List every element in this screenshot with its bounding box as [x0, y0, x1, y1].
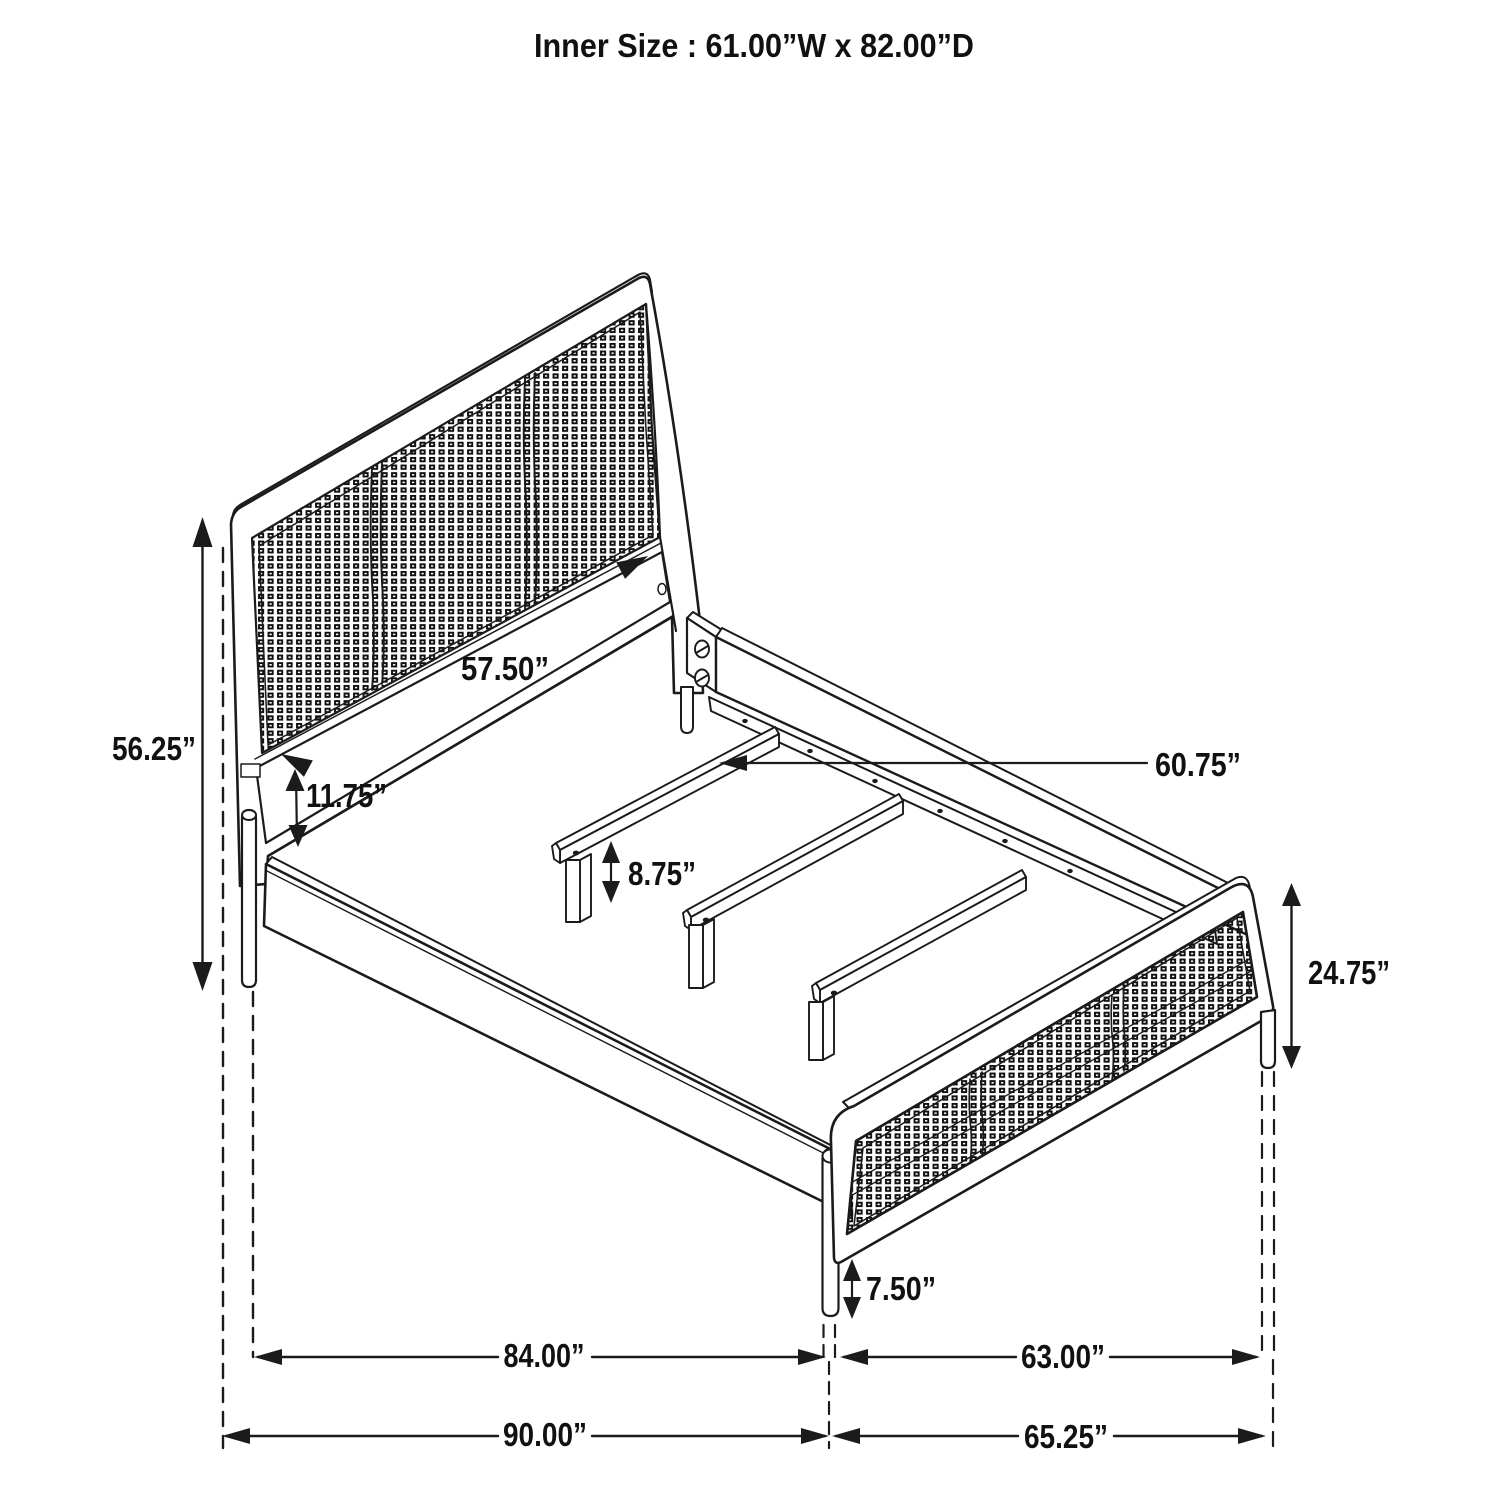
- svg-text:63.00”: 63.00”: [1021, 1338, 1105, 1375]
- svg-text:8.75”: 8.75”: [628, 855, 696, 892]
- svg-text:7.50”: 7.50”: [866, 1270, 936, 1307]
- svg-text:11.75”: 11.75”: [306, 777, 387, 814]
- svg-text:57.50”: 57.50”: [461, 650, 549, 687]
- svg-text:56.25”: 56.25”: [112, 730, 196, 767]
- svg-text:65.25”: 65.25”: [1024, 1418, 1108, 1455]
- svg-text:90.00”: 90.00”: [503, 1416, 587, 1453]
- svg-text:Inner Size : 61.00”W x 82.00”D: Inner Size : 61.00”W x 82.00”D: [534, 27, 974, 64]
- svg-text:84.00”: 84.00”: [504, 1337, 585, 1374]
- svg-text:60.75”: 60.75”: [1155, 746, 1241, 783]
- svg-text:24.75”: 24.75”: [1308, 954, 1390, 991]
